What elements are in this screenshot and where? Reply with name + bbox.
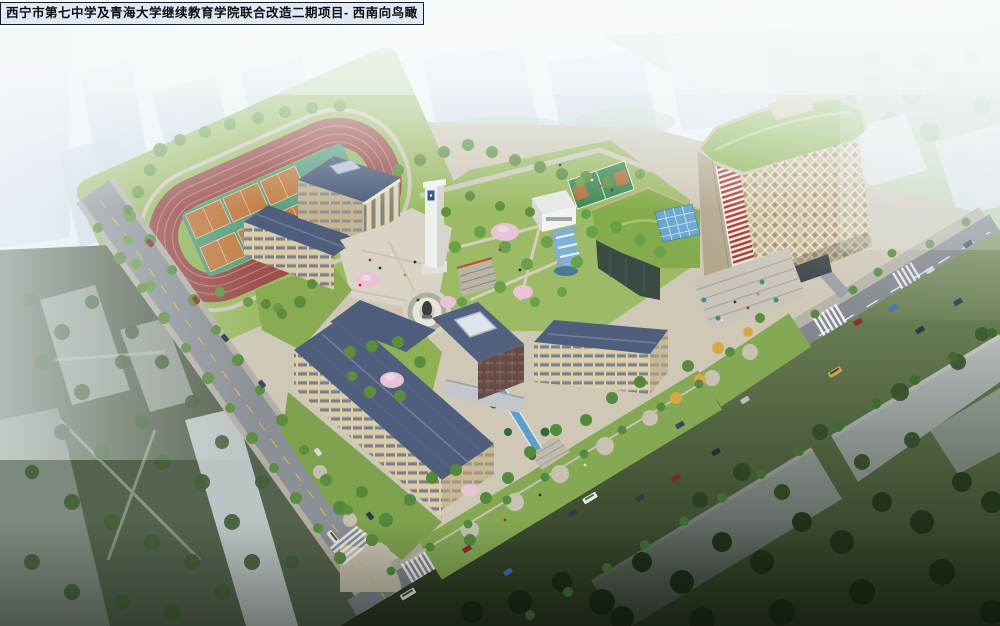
view-title-label: 西宁市第七中学及青海大学继续教育学院联合改造二期项目- 西南向鸟瞰 [0, 2, 424, 25]
statue [422, 301, 432, 317]
east-classroom-building [534, 320, 668, 394]
rendering-canvas [0, 0, 1000, 626]
aerial-rendering: 西宁市第七中学及青海大学继续教育学院联合改造二期项目- 西南向鸟瞰 [0, 0, 1000, 626]
